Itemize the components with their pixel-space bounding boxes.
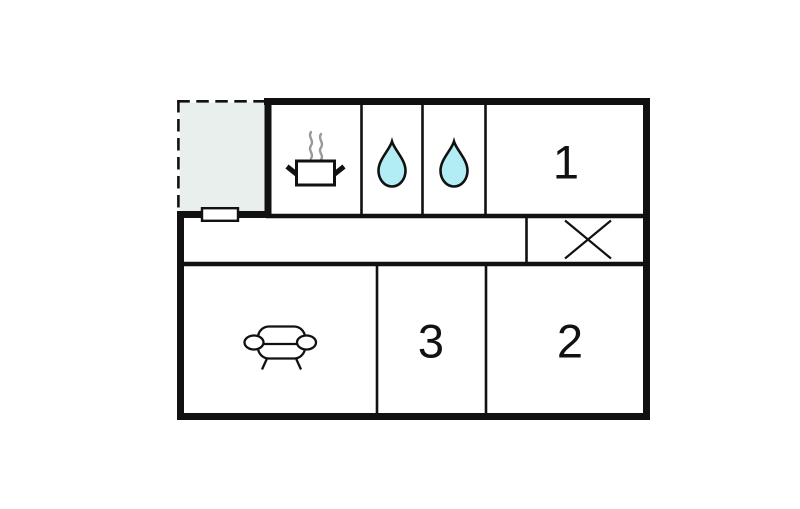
sofa-icon — [245, 327, 317, 370]
steam-line-left — [310, 132, 312, 159]
steam-line-right — [320, 134, 322, 160]
room-number-bedroom-2: 2 — [557, 315, 583, 368]
sofa-armrest-right — [297, 336, 316, 350]
sofa-leg-right — [296, 359, 301, 370]
floor-plan: 1 3 2 — [0, 0, 800, 509]
room-number-bedroom-3: 3 — [418, 315, 444, 368]
sofa-armrest-left — [245, 336, 264, 350]
cooking-pot-icon — [287, 132, 344, 185]
water-drop-icon — [379, 142, 406, 187]
water-drop-icon — [441, 142, 468, 187]
terrace-area — [177, 100, 266, 213]
pot-body — [297, 161, 335, 185]
floorplan-canvas: 1 3 2 — [0, 0, 800, 509]
crossed-box-icon — [565, 221, 611, 259]
room-number-bedroom-1: 1 — [553, 136, 579, 189]
terrace-fill — [180, 103, 265, 212]
sofa-leg-left — [262, 359, 267, 370]
window-symbol — [202, 208, 238, 221]
